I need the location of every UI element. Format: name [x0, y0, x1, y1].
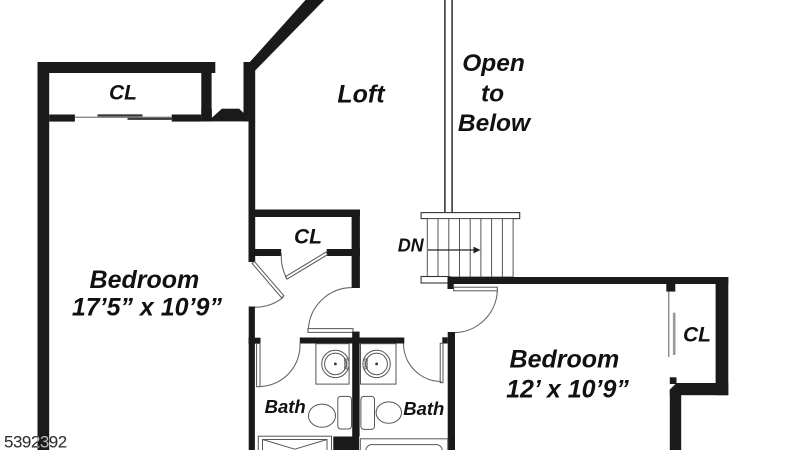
svg-text:to: to	[481, 81, 504, 108]
svg-text:Open: Open	[462, 50, 525, 77]
svg-text:DN: DN	[398, 235, 425, 255]
svg-text:Loft: Loft	[337, 80, 386, 108]
svg-text:5392392: 5392392	[4, 432, 67, 450]
svg-text:17’5” x 10’9”: 17’5” x 10’9”	[72, 294, 223, 322]
svg-text:Bath: Bath	[403, 398, 444, 419]
svg-text:12’ x 10’9”: 12’ x 10’9”	[506, 376, 629, 404]
svg-text:Bedroom: Bedroom	[90, 266, 200, 294]
svg-text:CL: CL	[683, 324, 711, 347]
svg-text:CL: CL	[294, 226, 322, 249]
svg-text:Bath: Bath	[265, 396, 306, 417]
svg-text:Below: Below	[458, 110, 532, 137]
svg-text:CL: CL	[109, 82, 137, 105]
svg-text:Bedroom: Bedroom	[510, 346, 620, 374]
